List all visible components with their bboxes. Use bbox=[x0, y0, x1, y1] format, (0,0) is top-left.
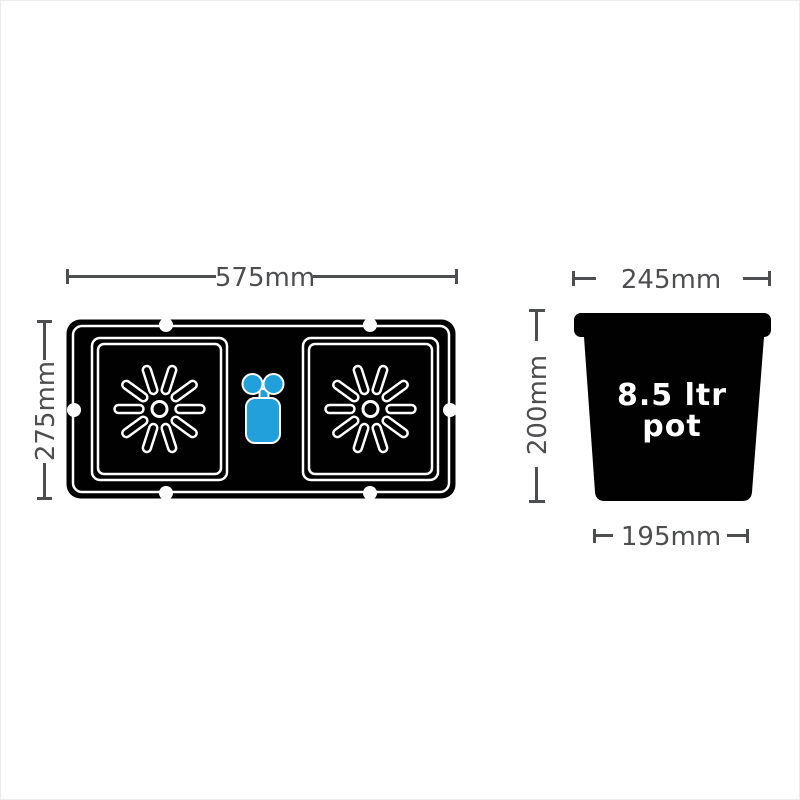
pot-base-width-dimension-label: 195mm bbox=[621, 522, 721, 552]
diagram-canvas: 575mm 275mm bbox=[0, 0, 800, 800]
tray-height-tick-bottom bbox=[37, 497, 52, 500]
pot-top-width-line-left bbox=[572, 277, 596, 280]
tray-hole-dot-icon bbox=[443, 403, 457, 417]
pot-base-width-line-left bbox=[593, 534, 613, 537]
tray-width-tick-right bbox=[455, 269, 458, 284]
tray-hole-dot-icon bbox=[363, 318, 377, 332]
pot-height-line-top bbox=[535, 311, 538, 341]
tray-top-view-icon bbox=[65, 318, 457, 500]
tray-width-line-left bbox=[66, 275, 216, 278]
tray-height-line-top bbox=[43, 322, 46, 360]
pot-size-label-line2: pot bbox=[566, 411, 778, 442]
pot-top-width-tick-right bbox=[768, 271, 771, 286]
pot-height-tick-bottom bbox=[529, 500, 545, 503]
tray-hole-dot-icon bbox=[159, 318, 173, 332]
pot-height-dimension-label: 200mm bbox=[523, 355, 553, 455]
pot-top-width-line-right bbox=[743, 277, 771, 280]
pot-base-width-line-right bbox=[727, 534, 747, 537]
tray-width-dimension-label: 575mm bbox=[215, 263, 315, 293]
pot-size-label-line1: 8.5 ltr bbox=[566, 380, 778, 411]
tray-width-line-right bbox=[313, 275, 458, 278]
tray-height-dimension-label: 275mm bbox=[31, 361, 61, 461]
pot-height-line-bottom bbox=[535, 467, 538, 501]
pot-size-label: 8.5 ltr pot bbox=[566, 380, 778, 442]
tray-hole-dot-icon bbox=[363, 486, 377, 500]
float-valve-icon bbox=[243, 374, 284, 443]
pot-base-width-tick-right bbox=[746, 529, 749, 543]
pot-top-width-dimension-label: 245mm bbox=[621, 265, 721, 295]
pot-rim bbox=[574, 313, 771, 337]
tray-hole-dot-icon bbox=[159, 486, 173, 500]
tray-height-line-bottom bbox=[43, 463, 46, 499]
tray-hole-dot-icon bbox=[67, 403, 81, 417]
